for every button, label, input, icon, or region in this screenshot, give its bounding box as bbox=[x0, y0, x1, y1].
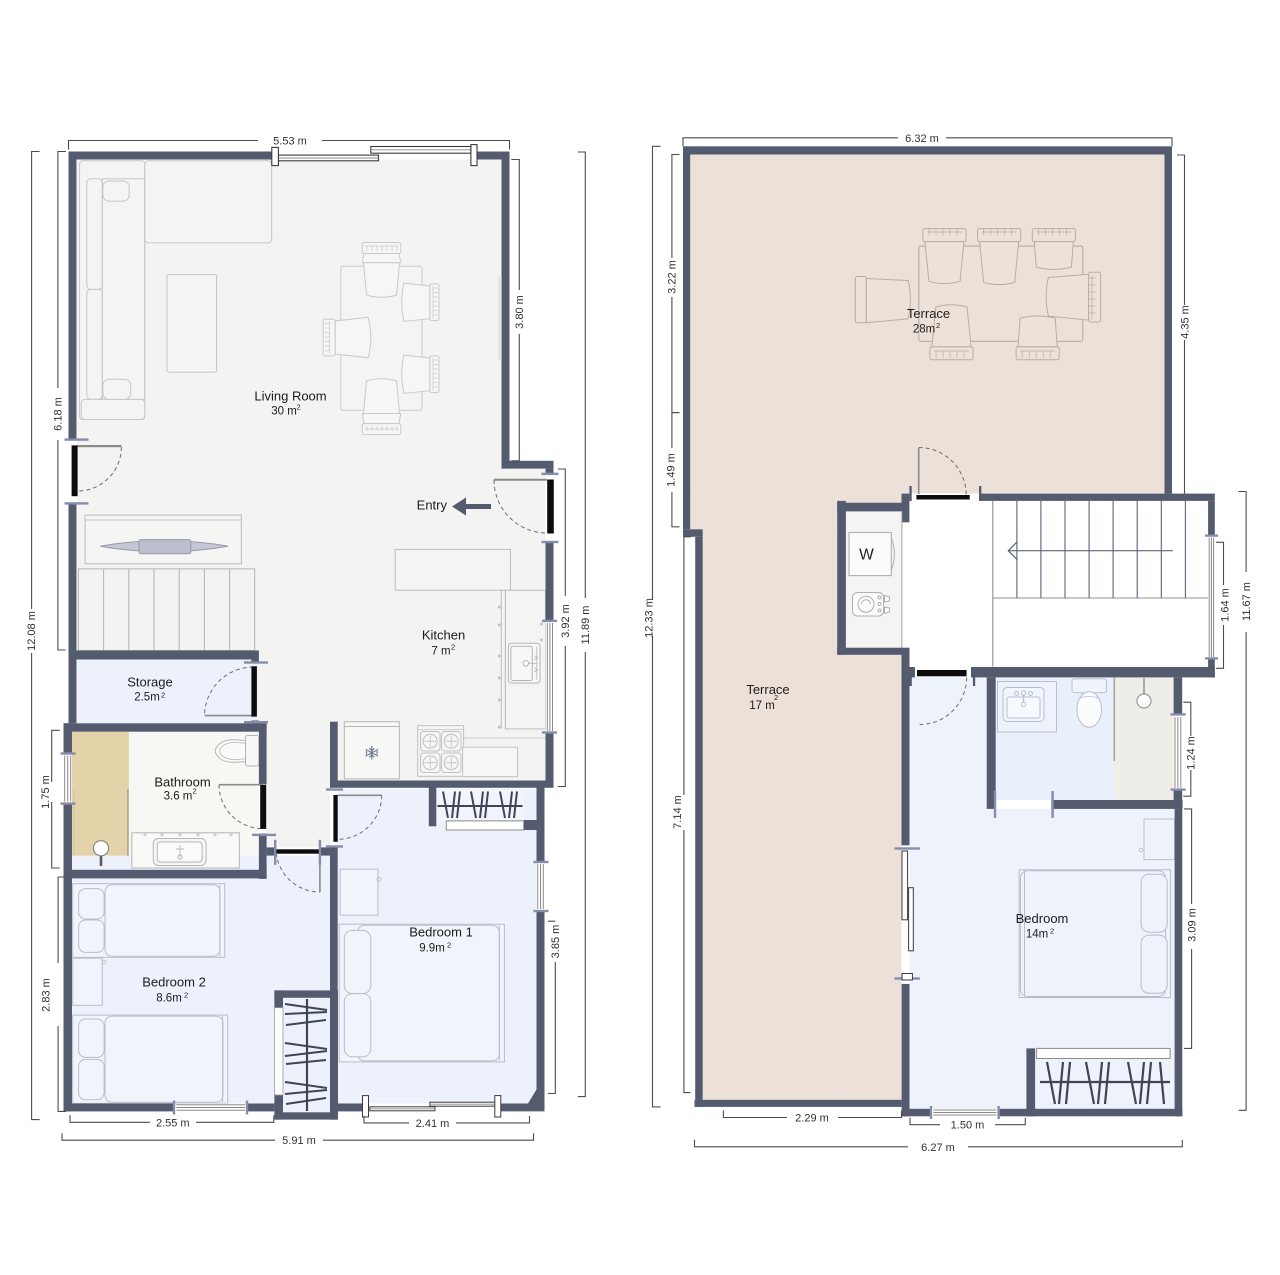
svg-text:3.80 m: 3.80 m bbox=[514, 295, 526, 329]
svg-text:1.64 m: 1.64 m bbox=[1220, 588, 1232, 622]
svg-text:2: 2 bbox=[1050, 927, 1054, 936]
svg-text:6.18 m: 6.18 m bbox=[53, 397, 65, 431]
svg-text:2: 2 bbox=[447, 941, 451, 950]
svg-text:1.49 m: 1.49 m bbox=[666, 453, 678, 487]
svg-text:2.5m: 2.5m bbox=[134, 692, 160, 704]
svg-text:3.85 m: 3.85 m bbox=[550, 925, 562, 959]
svg-text:3.6 m: 3.6 m bbox=[164, 791, 193, 803]
svg-text:8.6m: 8.6m bbox=[156, 993, 182, 1005]
svg-text:2: 2 bbox=[451, 643, 455, 652]
svg-text:2: 2 bbox=[936, 321, 940, 330]
svg-text:Terrace: Terrace bbox=[907, 306, 950, 321]
svg-text:3.22 m: 3.22 m bbox=[667, 260, 679, 294]
svg-text:2: 2 bbox=[297, 403, 301, 412]
svg-text:Living Room: Living Room bbox=[254, 389, 326, 404]
svg-text:2.55 m: 2.55 m bbox=[156, 1117, 190, 1129]
svg-text:Terrace: Terrace bbox=[746, 682, 789, 697]
svg-text:Bathroom: Bathroom bbox=[154, 775, 210, 790]
svg-text:28m: 28m bbox=[913, 324, 935, 336]
svg-text:Bedroom 2: Bedroom 2 bbox=[142, 975, 206, 990]
svg-text:6.27 m: 6.27 m bbox=[921, 1142, 955, 1154]
svg-text:14m: 14m bbox=[1026, 929, 1048, 941]
svg-text:17 m: 17 m bbox=[749, 700, 775, 712]
svg-text:Kitchen: Kitchen bbox=[422, 628, 465, 643]
svg-text:3.92 m: 3.92 m bbox=[560, 604, 572, 638]
svg-text:1.75 m: 1.75 m bbox=[40, 775, 52, 809]
svg-text:Bedroom: Bedroom bbox=[1016, 911, 1069, 926]
svg-text:2: 2 bbox=[161, 691, 165, 700]
svg-text:7 m: 7 m bbox=[431, 646, 450, 658]
svg-text:11.89 m: 11.89 m bbox=[580, 606, 592, 645]
svg-text:1.24 m: 1.24 m bbox=[1186, 736, 1198, 770]
svg-text:9.9m: 9.9m bbox=[419, 943, 445, 955]
svg-text:1.50 m: 1.50 m bbox=[951, 1120, 985, 1132]
svg-text:3.09 m: 3.09 m bbox=[1186, 908, 1198, 942]
svg-text:6.32 m: 6.32 m bbox=[905, 133, 939, 145]
svg-text:2: 2 bbox=[193, 787, 197, 796]
svg-text:W: W bbox=[859, 547, 874, 564]
svg-text:2.83 m: 2.83 m bbox=[41, 978, 53, 1012]
svg-text:5.53 m: 5.53 m bbox=[273, 136, 307, 148]
svg-text:Bedroom 1: Bedroom 1 bbox=[409, 925, 473, 940]
svg-text:2.29 m: 2.29 m bbox=[795, 1113, 829, 1125]
svg-text:Entry: Entry bbox=[417, 498, 448, 513]
svg-text:4.35 m: 4.35 m bbox=[1179, 305, 1191, 339]
svg-text:11.67 m: 11.67 m bbox=[1241, 582, 1253, 621]
svg-text:2: 2 bbox=[184, 991, 188, 1000]
svg-text:2.41 m: 2.41 m bbox=[416, 1118, 450, 1130]
svg-text:5.91 m: 5.91 m bbox=[282, 1135, 316, 1147]
svg-text:30 m: 30 m bbox=[271, 406, 297, 418]
svg-text:12.08 m: 12.08 m bbox=[26, 611, 38, 651]
svg-text:Storage: Storage bbox=[127, 675, 173, 690]
svg-text:2: 2 bbox=[774, 693, 778, 702]
svg-text:12.33 m: 12.33 m bbox=[644, 598, 656, 638]
svg-text:7.14 m: 7.14 m bbox=[672, 795, 684, 829]
